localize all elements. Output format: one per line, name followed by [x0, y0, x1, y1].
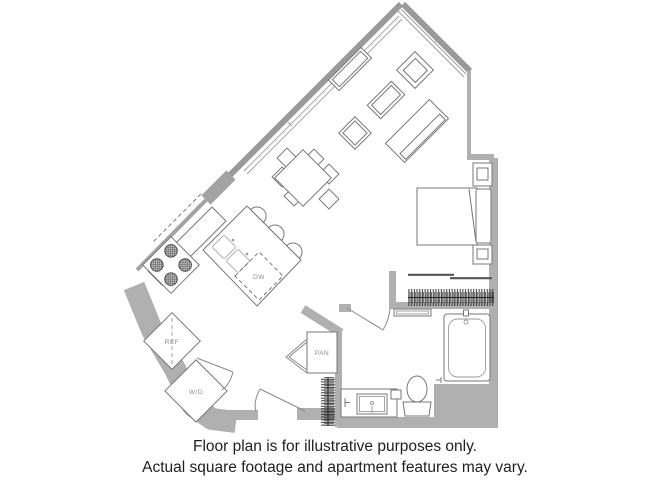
- side-table: [339, 117, 372, 150]
- pantry-label: PAN: [315, 350, 329, 357]
- tub-faucet: [464, 310, 469, 316]
- dining-chair: [319, 189, 339, 209]
- bathroom-door: [347, 308, 390, 330]
- washer-dryer-label: W/D: [189, 389, 203, 396]
- pantry-bifold-door: [286, 339, 307, 373]
- dishwasher-label: DW: [253, 274, 265, 281]
- faucet-dot: [246, 253, 249, 256]
- entry-door: [255, 389, 305, 411]
- bedroom: [408, 163, 494, 306]
- toilet: [403, 376, 431, 416]
- faucet-dot: [232, 239, 235, 242]
- kitchen-wall-pier: [206, 175, 231, 200]
- armchair: [397, 52, 434, 89]
- kitchen: DW REF W/D: [143, 194, 302, 422]
- living-dining: [272, 47, 448, 208]
- caption-line-2: Actual square footage and apartment feat…: [0, 457, 670, 478]
- sofa: [386, 100, 449, 163]
- coffee-table: [367, 81, 404, 118]
- closet-left-jamb: [389, 271, 396, 309]
- coat-closet: [321, 377, 335, 426]
- bathtub: [444, 310, 490, 381]
- bed: [417, 188, 477, 245]
- refrigerator-label: REF: [165, 339, 180, 346]
- disclaimer-caption: Floor plan is for illustrative purposes …: [0, 436, 670, 478]
- nightstand: [473, 245, 492, 264]
- floor-plan-page: DW REF W/D PAN: [0, 0, 670, 480]
- bedroom-closet: [408, 275, 494, 306]
- bath-door-jamb: [339, 304, 351, 312]
- nightstand: [473, 163, 492, 186]
- caption-line-1: Floor plan is for illustrative purposes …: [0, 436, 670, 457]
- towel-bar: [394, 309, 431, 316]
- vanity-side-cabinet: [391, 390, 401, 399]
- bathroom-corner-wall: [434, 384, 494, 424]
- angled-hall-wall: [303, 309, 341, 333]
- floor-plan-drawing: DW REF W/D PAN: [0, 0, 670, 480]
- headboard: [476, 189, 491, 243]
- living-right-wall: [467, 71, 471, 158]
